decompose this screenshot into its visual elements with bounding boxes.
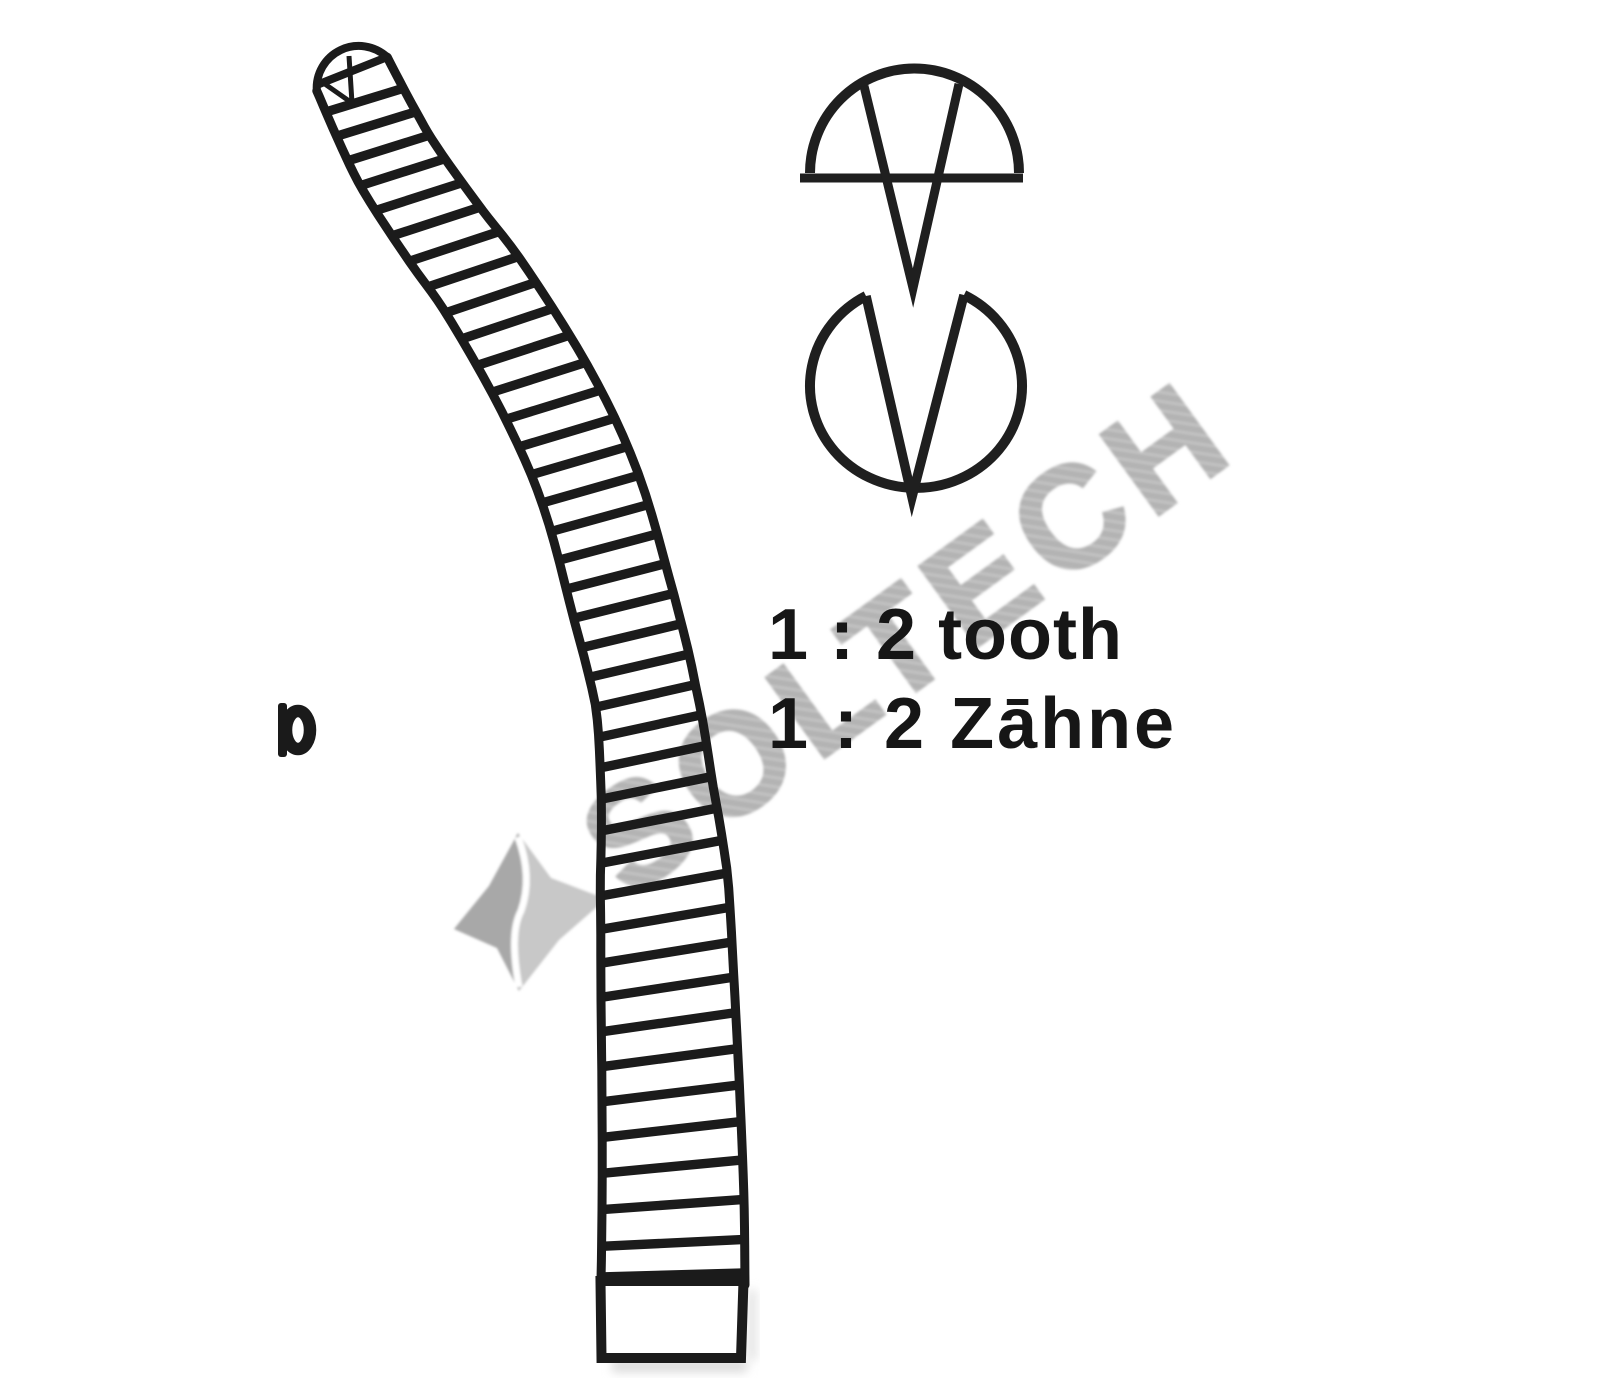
svg-text:1 : 2 Zāhne: 1 : 2 Zāhne (768, 684, 1177, 764)
svg-text:1 : 2 tooth: 1 : 2 tooth (768, 595, 1123, 675)
